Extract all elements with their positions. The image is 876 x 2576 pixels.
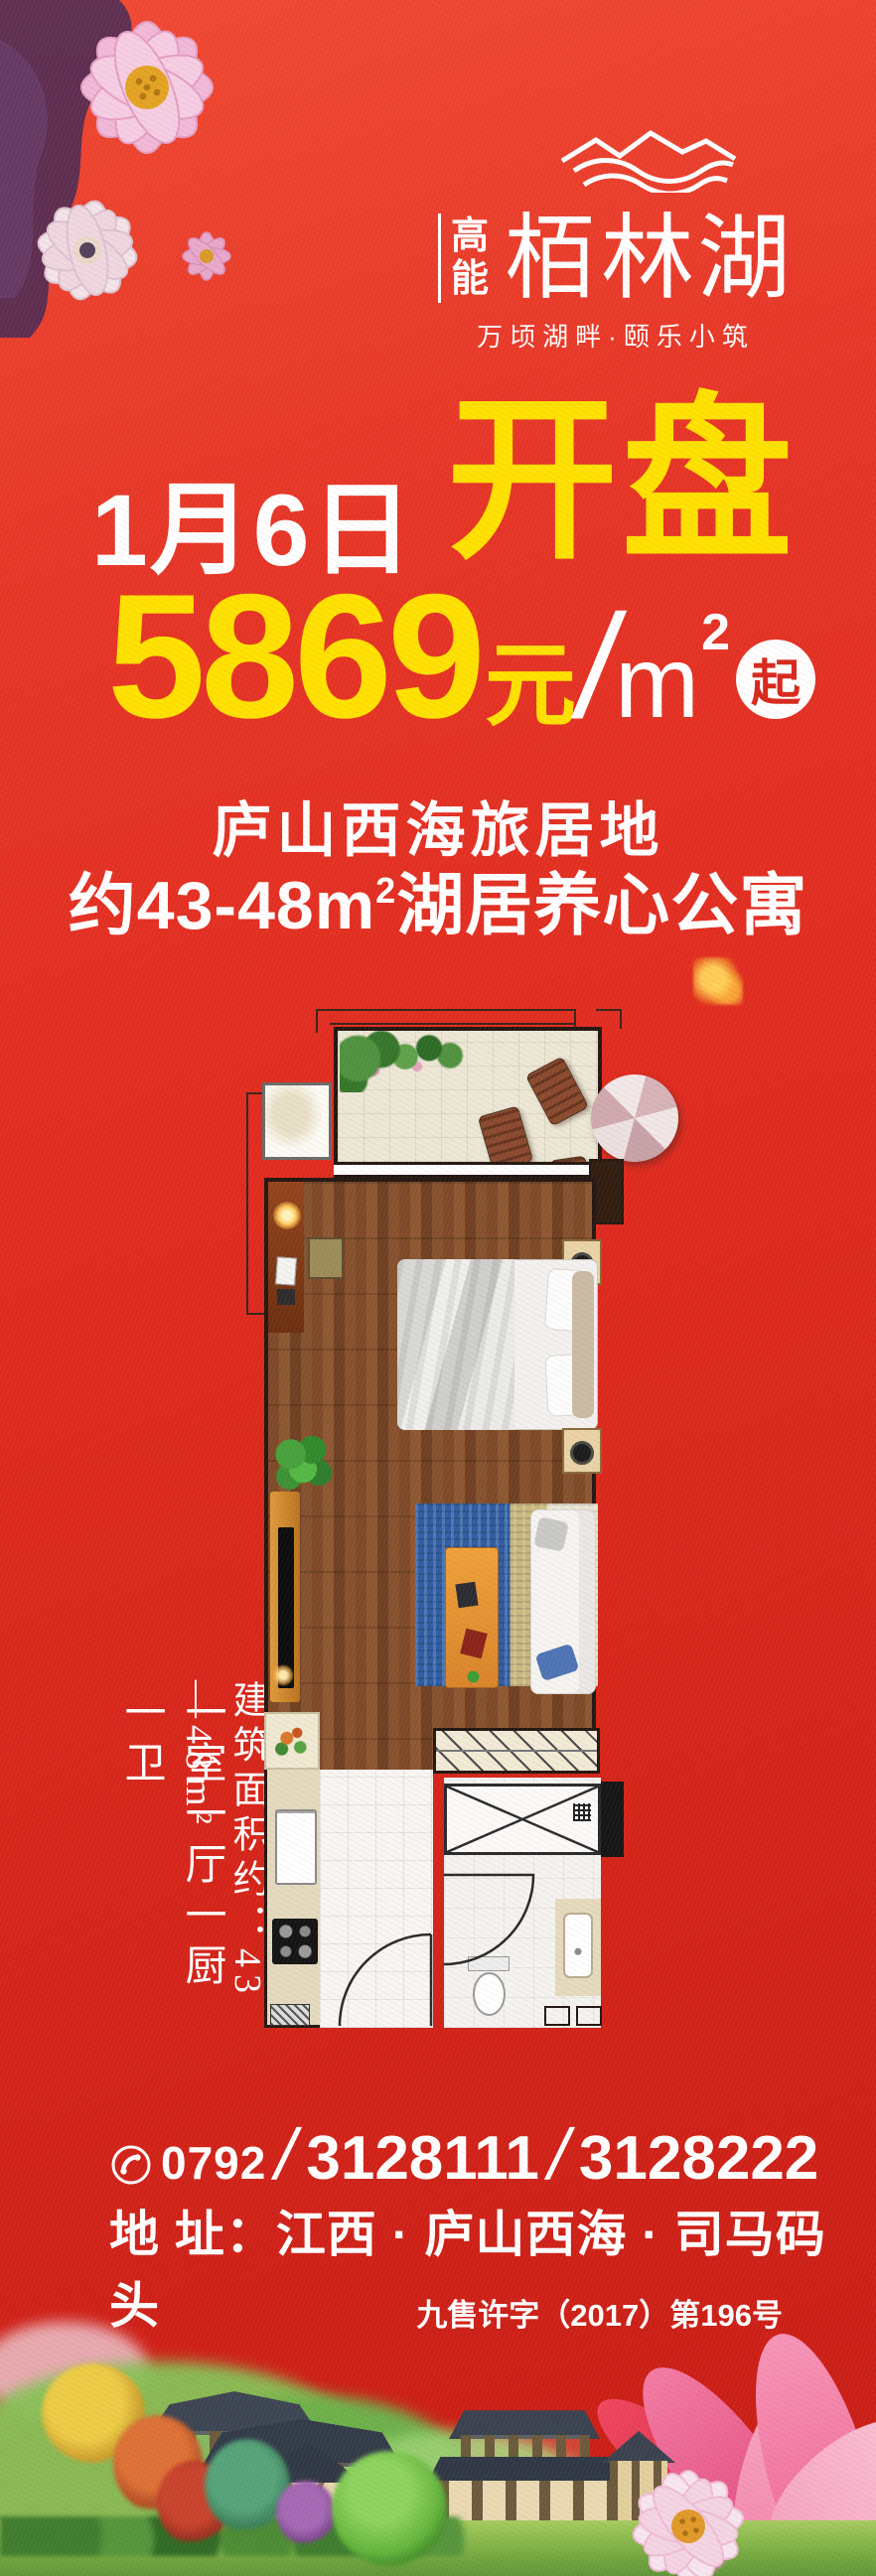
- opening-event: 开盘: [447, 392, 797, 570]
- price-currency-unit: 元: [485, 612, 576, 744]
- subtitle-area-unit: m: [315, 868, 375, 943]
- green-tree: [332, 2451, 447, 2566]
- phone-area-code: 0792: [161, 2136, 266, 2190]
- cosmos-flower-small: [183, 232, 230, 280]
- cosmos-flower-large: [81, 22, 213, 153]
- lake-waves-icon: [556, 129, 755, 193]
- apartment-floorplan: [246, 1005, 624, 2033]
- resort-illustration: [0, 2336, 876, 2576]
- brand-tagline: 万顷湖畔·颐乐小筑: [437, 317, 795, 354]
- subtitle-product: 约43-48m2湖居养心公寓: [0, 850, 876, 948]
- brand-name: 栢林湖: [505, 212, 794, 305]
- brand-prefix-top: 高: [451, 215, 489, 258]
- subtitle-area-range: 约43-48: [69, 868, 315, 943]
- phone-slash: /: [269, 2123, 303, 2188]
- subtitle-area-superscript: 2: [375, 870, 396, 911]
- purple-bush: [276, 2481, 336, 2544]
- phone-icon: [109, 2143, 153, 2187]
- brand-prefix: 高 能: [438, 214, 495, 302]
- price-area-unit: m: [615, 625, 699, 741]
- phone-slash: /: [542, 2123, 576, 2188]
- price-line: 5869 元 / m 2 起: [107, 568, 815, 757]
- price-area-superscript: 2: [701, 603, 730, 662]
- gold-fleck-decoration: [693, 957, 743, 1005]
- door-swing-lines: [246, 1005, 624, 2033]
- subtitle-product-name: 湖居养心公寓: [396, 868, 807, 943]
- sales-license-number: 九售许字（2017）第196号: [416, 2290, 783, 2335]
- lodge-wall: [461, 2435, 590, 2459]
- brand-logo: 高 能 栢林湖 万顷湖畔·颐乐小筑: [437, 129, 795, 354]
- phone-number-2: 3128222: [579, 2123, 818, 2194]
- phone-line: 0792 / 3128111 / 3128222: [109, 2123, 818, 2194]
- room-layout-vertical-label: 一室一厅一厨一卫: [111, 1690, 232, 2018]
- poster: 高 能 栢林湖 万顷湖畔·颐乐小筑 1月6日 开盘 5869 元 / m 2 起…: [0, 0, 876, 2576]
- phone-number-1: 3128111: [306, 2123, 539, 2194]
- lodge-roof: [449, 2403, 600, 2439]
- price-qi-badge: 起: [736, 640, 815, 719]
- brand-prefix-bottom: 能: [451, 258, 489, 301]
- cosmos-flowers-top-left-decoration: [0, 0, 308, 338]
- price-amount: 5869: [107, 568, 481, 745]
- cosmos-flower-bottom-right: [584, 2441, 793, 2576]
